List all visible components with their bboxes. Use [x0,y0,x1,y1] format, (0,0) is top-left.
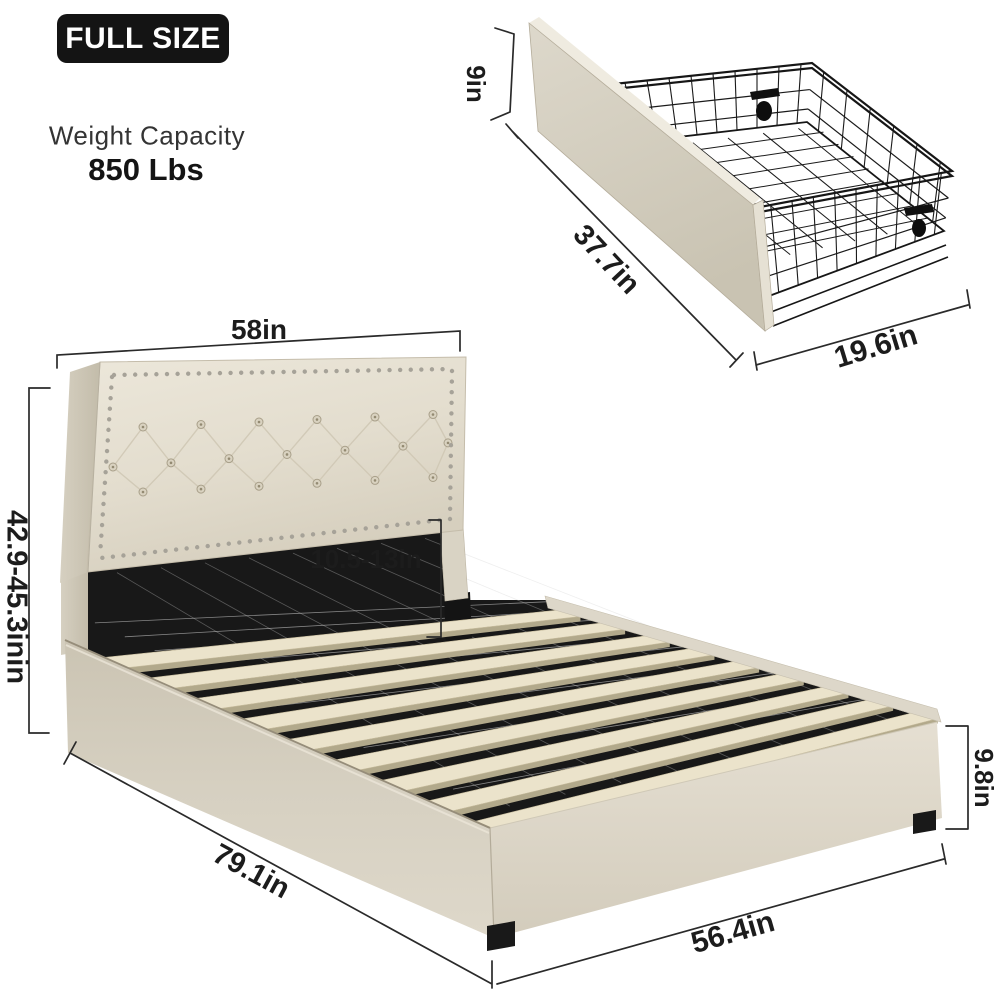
headboard-right-leg [440,525,468,601]
headboard-to-slat-label: 10.5-13in [310,546,421,572]
headboard-height-label: 42.9-45.3inin [2,510,31,684]
weight-capacity-title: Weight Capacity [49,121,245,152]
dim-line-9in [491,28,514,120]
size-badge-label: FULL SIZE [65,22,221,56]
rail-height-label: 9.8in [971,748,997,807]
storage-drawer [529,17,952,331]
drawer-height-label: 9in [463,65,489,103]
dim-line-9-8in [946,726,968,829]
product-dimension-diagram: { "badge": { "label": "FULL SIZE" }, "ca… [0,0,1000,1000]
headboard-left-leg [61,569,88,655]
size-badge: FULL SIZE [57,14,229,63]
drawer-front-panel [529,17,774,331]
weight-capacity-value: 850 Lbs [88,152,203,188]
headboard-width-label: 58in [231,316,287,344]
